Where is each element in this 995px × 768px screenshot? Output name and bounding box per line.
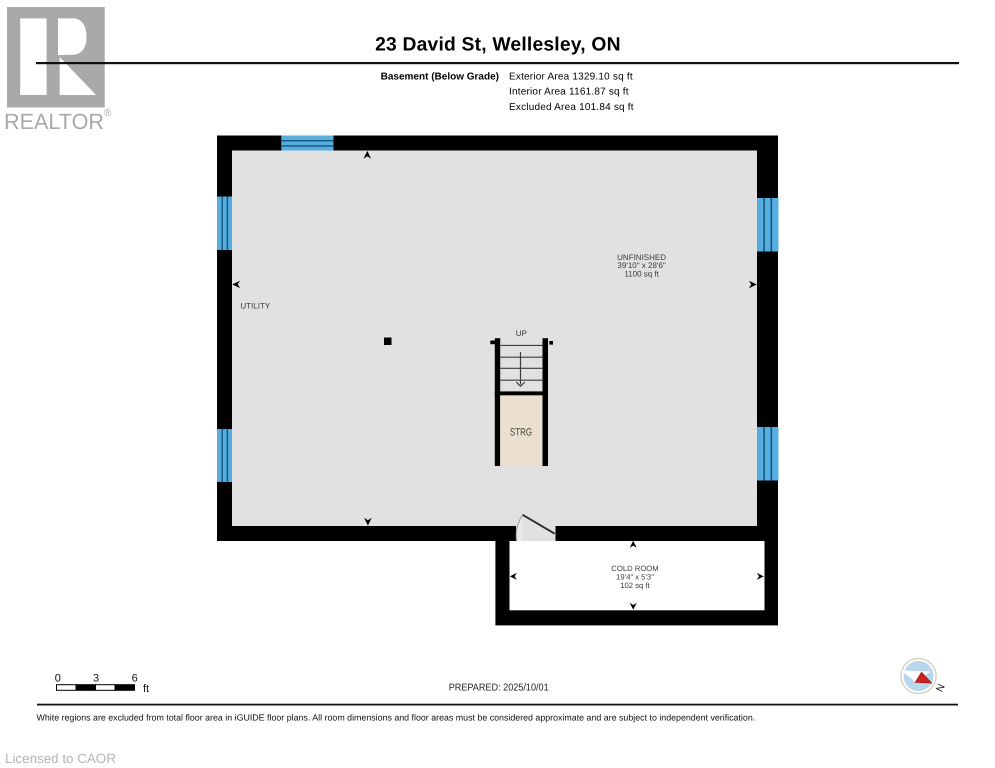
svg-text:UP: UP [516, 329, 527, 338]
svg-text:Interior Area 1161.87 sq ft: Interior Area 1161.87 sq ft [509, 87, 629, 98]
svg-text:®: ® [104, 108, 112, 119]
svg-text:1100 sq ft: 1100 sq ft [624, 270, 659, 279]
svg-text:3: 3 [93, 673, 99, 685]
svg-text:Exterior Area 1329.10 sq ft: Exterior Area 1329.10 sq ft [509, 72, 633, 83]
svg-text:0: 0 [55, 673, 61, 685]
svg-text:23 David St, Wellesley, ON: 23 David St, Wellesley, ON [375, 34, 621, 55]
svg-text:Licensed to CAOR: Licensed to CAOR [5, 751, 116, 766]
svg-text:STRG: STRG [510, 426, 532, 438]
svg-text:Basement (Below Grade): Basement (Below Grade) [381, 72, 499, 83]
svg-text:White regions are excluded fro: White regions are excluded from total fl… [37, 713, 756, 723]
svg-text:PREPARED: 2025/10/01: PREPARED: 2025/10/01 [449, 683, 549, 694]
svg-text:ft: ft [143, 683, 149, 695]
svg-text:Excluded Area 101.84 sq ft: Excluded Area 101.84 sq ft [509, 102, 634, 113]
svg-text:REALTOR: REALTOR [4, 109, 104, 134]
svg-text:102 sq ft: 102 sq ft [620, 581, 650, 590]
svg-text:19'4" x 5'3": 19'4" x 5'3" [616, 572, 654, 581]
svg-text:6: 6 [132, 673, 138, 685]
svg-text:UTILITY: UTILITY [240, 301, 270, 310]
